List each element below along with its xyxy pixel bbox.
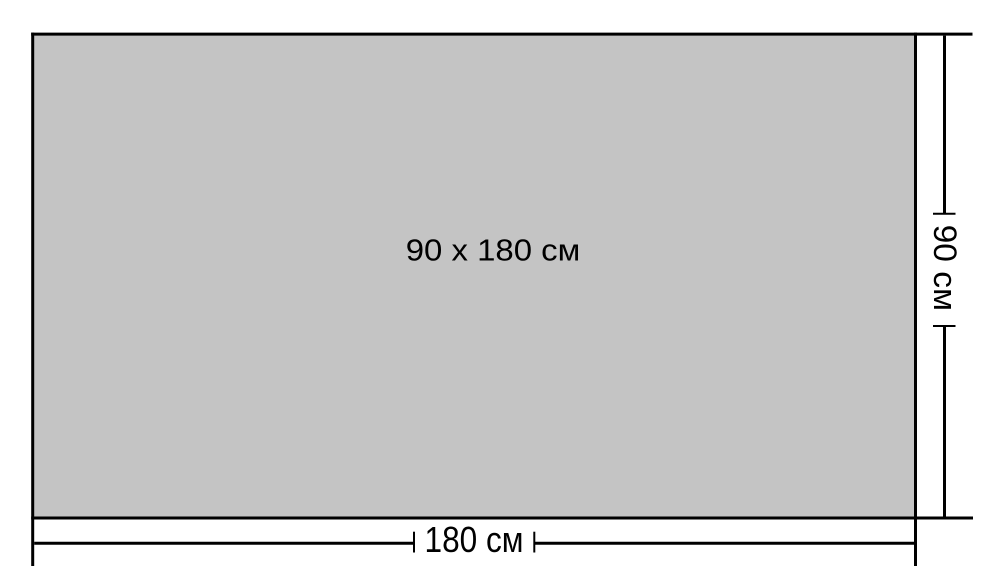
svg-text:90 x 180 см: 90 x 180 см [406, 232, 581, 267]
svg-text:180 см: 180 см [425, 519, 524, 560]
svg-text:90 см: 90 см [927, 225, 963, 312]
